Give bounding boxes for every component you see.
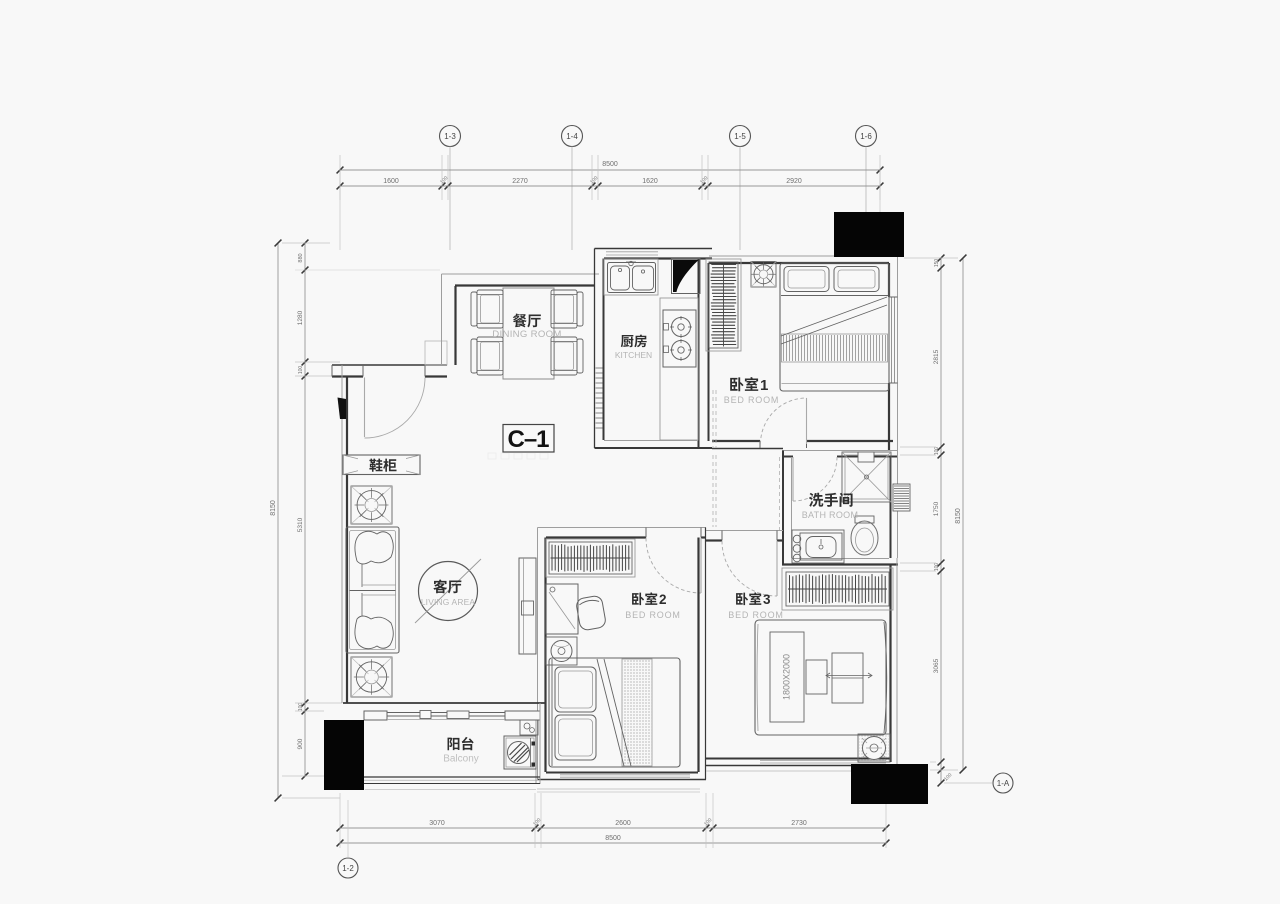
- svg-text:100: 100: [298, 366, 304, 375]
- svg-text:1-5: 1-5: [734, 132, 746, 141]
- svg-text:KITCHEN: KITCHEN: [615, 350, 652, 360]
- svg-text:BATH ROOM: BATH ROOM: [802, 510, 859, 520]
- svg-text:1: 1: [760, 377, 768, 394]
- svg-text:5310: 5310: [297, 517, 304, 532]
- svg-text:8150: 8150: [955, 508, 962, 524]
- svg-text:1-6: 1-6: [860, 132, 872, 141]
- svg-text:Balcony: Balcony: [443, 754, 479, 765]
- svg-text:BED ROOM: BED ROOM: [625, 610, 680, 620]
- svg-text:1800X2000: 1800X2000: [782, 654, 792, 700]
- svg-text:BED ROOM: BED ROOM: [724, 395, 779, 405]
- svg-text:1600: 1600: [383, 178, 399, 185]
- svg-text:8500: 8500: [602, 161, 618, 168]
- svg-text:2: 2: [659, 592, 667, 607]
- svg-text:100: 100: [934, 447, 940, 456]
- svg-text:1-A: 1-A: [997, 779, 1010, 788]
- svg-text:100: 100: [298, 703, 304, 712]
- svg-text:880: 880: [298, 253, 304, 262]
- svg-text:1750: 1750: [933, 501, 940, 516]
- svg-text:2270: 2270: [512, 178, 528, 185]
- svg-text:3065: 3065: [933, 658, 940, 673]
- svg-text:LIVING AREA: LIVING AREA: [421, 597, 476, 607]
- svg-text:900: 900: [297, 738, 304, 749]
- svg-text:3: 3: [763, 592, 771, 607]
- svg-text:1280: 1280: [297, 310, 304, 325]
- svg-text:2600: 2600: [615, 820, 631, 827]
- svg-text:C–1: C–1: [507, 426, 549, 453]
- svg-text:1-3: 1-3: [444, 132, 456, 141]
- svg-text:2730: 2730: [791, 820, 807, 827]
- svg-text:2920: 2920: [786, 178, 802, 185]
- svg-text:BED ROOM: BED ROOM: [728, 610, 783, 620]
- svg-text:1620: 1620: [642, 178, 658, 185]
- svg-text:1-4: 1-4: [566, 132, 578, 141]
- svg-text:DINING ROOM: DINING ROOM: [492, 329, 561, 340]
- svg-text:3070: 3070: [429, 820, 445, 827]
- svg-text:100: 100: [934, 563, 940, 572]
- svg-text:8500: 8500: [605, 835, 621, 842]
- svg-text:150: 150: [934, 259, 940, 268]
- svg-text:1-2: 1-2: [342, 864, 354, 873]
- svg-text:2815: 2815: [933, 349, 940, 364]
- svg-text:8150: 8150: [270, 500, 277, 516]
